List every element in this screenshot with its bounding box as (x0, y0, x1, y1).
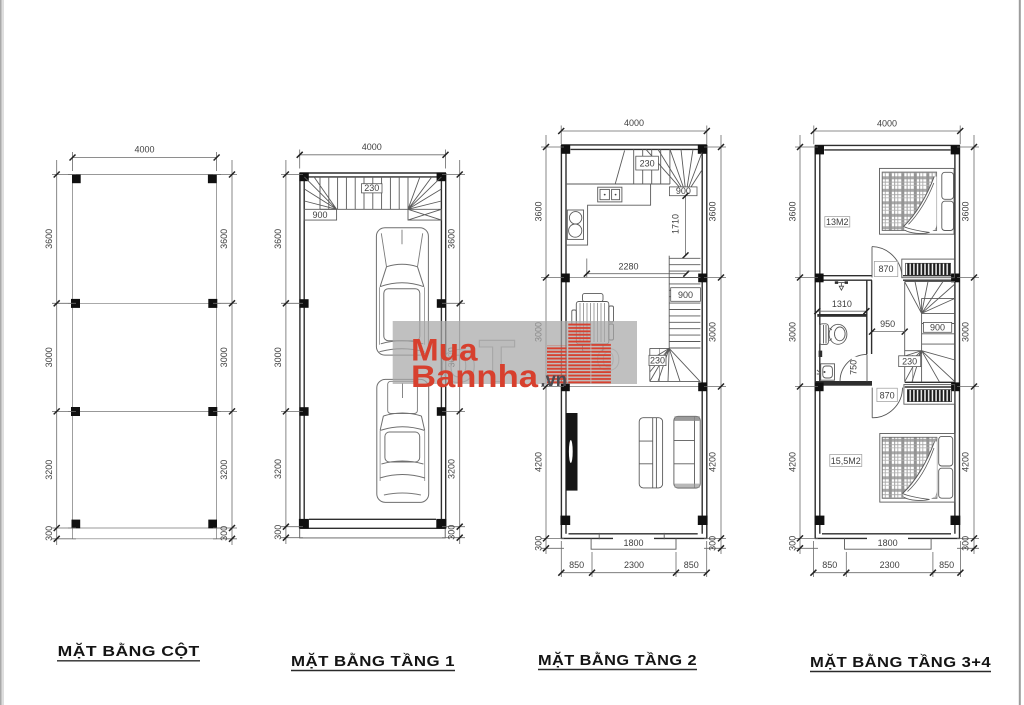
svg-text:MẶT BẰNG TẦNG 3+4: MẶT BẰNG TẦNG 3+4 (810, 653, 991, 671)
svg-text:950: 950 (880, 319, 895, 329)
svg-text:3600: 3600 (273, 229, 283, 249)
svg-text:1800: 1800 (623, 538, 643, 548)
svg-text:13M2: 13M2 (826, 217, 849, 227)
svg-text:2300: 2300 (624, 560, 644, 570)
svg-text:1710: 1710 (671, 214, 681, 234)
svg-text:230: 230 (640, 158, 655, 168)
svg-text:300: 300 (447, 525, 457, 540)
svg-text:Bannha: Bannha (411, 358, 539, 394)
svg-text:3200: 3200 (219, 460, 229, 480)
svg-text:3200: 3200 (44, 460, 54, 480)
svg-text:MẶT BẰNG TẦNG 1: MẶT BẰNG TẦNG 1 (291, 652, 455, 670)
svg-text:1310: 1310 (832, 299, 852, 309)
svg-text:300: 300 (961, 536, 971, 551)
svg-text:3200: 3200 (447, 459, 457, 479)
svg-text:3000: 3000 (787, 322, 797, 342)
svg-text:3600: 3600 (787, 201, 797, 221)
svg-text:4200: 4200 (787, 452, 797, 472)
svg-text:850: 850 (822, 560, 837, 570)
svg-text:750: 750 (849, 360, 859, 375)
svg-text:3600: 3600 (961, 201, 971, 221)
svg-text:3600: 3600 (708, 201, 718, 221)
svg-text:300: 300 (533, 536, 543, 551)
svg-text:230: 230 (364, 183, 379, 193)
svg-text:3600: 3600 (447, 229, 457, 249)
svg-text:3000: 3000 (708, 322, 718, 342)
svg-text:2280: 2280 (618, 262, 638, 272)
svg-text:300: 300 (787, 536, 797, 551)
svg-text:870: 870 (880, 390, 895, 400)
svg-text:4200: 4200 (961, 452, 971, 472)
svg-text:3600: 3600 (533, 201, 543, 221)
svg-text:870: 870 (878, 264, 893, 274)
svg-text:3000: 3000 (44, 347, 54, 367)
svg-text:850: 850 (569, 560, 584, 570)
svg-text:4200: 4200 (708, 452, 718, 472)
svg-text:3000: 3000 (273, 347, 283, 367)
svg-text:900: 900 (678, 290, 693, 300)
svg-text:900: 900 (930, 322, 945, 332)
svg-text:15,5M2: 15,5M2 (831, 456, 861, 466)
svg-text:230: 230 (902, 356, 917, 366)
svg-text:900: 900 (312, 210, 327, 220)
svg-text:3200: 3200 (273, 459, 283, 479)
svg-text:230: 230 (650, 355, 665, 365)
svg-text:MẶT BẰNG TẦNG 2: MẶT BẰNG TẦNG 2 (538, 651, 697, 669)
svg-text:850: 850 (939, 560, 954, 570)
svg-text:300: 300 (44, 526, 54, 541)
svg-text:2300: 2300 (880, 560, 900, 570)
svg-text:4000: 4000 (877, 119, 897, 129)
svg-text:300: 300 (708, 536, 718, 551)
svg-text:MẶT BẰNG CỘT: MẶT BẰNG CỘT (58, 642, 200, 660)
svg-text:900: 900 (676, 186, 691, 196)
svg-text:300: 300 (219, 526, 229, 541)
svg-text:850: 850 (684, 560, 699, 570)
svg-text:4000: 4000 (362, 142, 382, 152)
svg-text:3600: 3600 (44, 229, 54, 249)
svg-text:3600: 3600 (219, 229, 229, 249)
svg-text:300: 300 (273, 525, 283, 540)
svg-text:1800: 1800 (878, 538, 898, 548)
svg-text:4000: 4000 (134, 145, 154, 155)
svg-text:3000: 3000 (219, 347, 229, 367)
svg-text:.vn: .vn (541, 370, 568, 391)
svg-text:4200: 4200 (533, 452, 543, 472)
svg-text:4000: 4000 (624, 118, 644, 128)
svg-text:3000: 3000 (961, 322, 971, 342)
